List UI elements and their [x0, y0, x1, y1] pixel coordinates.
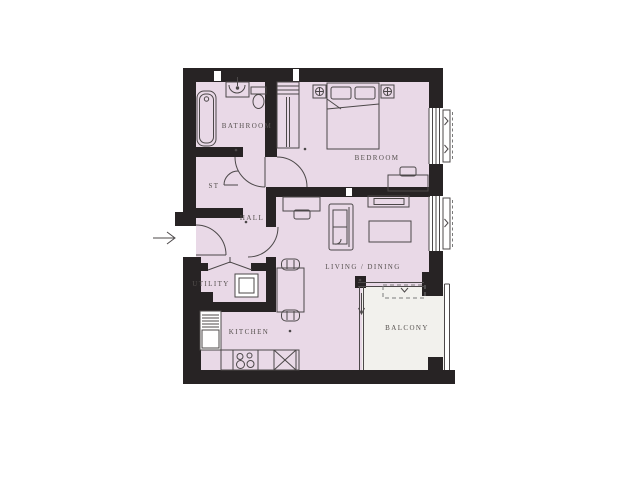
room-label-st: ST [209, 182, 220, 190]
living-window [429, 196, 453, 251]
room-label-kitchen: KITCHEN [229, 328, 270, 336]
entry-arrow-icon [153, 232, 175, 244]
bedroom-window [429, 108, 453, 164]
room-label-living-dining: LIVING / DINING [325, 263, 400, 271]
room-label-balcony: BALCONY [385, 324, 429, 332]
room-label-bedroom: BEDROOM [355, 154, 400, 162]
floor-plan-page: BATHROOM ST HALL BEDROOM UTILITY LIVING … [0, 0, 640, 480]
floor-plan-drawing: BATHROOM ST HALL BEDROOM UTILITY LIVING … [0, 0, 640, 480]
washing-machine-icon [235, 274, 258, 297]
room-label-hall: HALL [240, 214, 264, 222]
room-label-bathroom: BATHROOM [222, 122, 272, 130]
room-label-utility: UTILITY [192, 280, 229, 288]
utility-fixtures [235, 274, 258, 297]
fridge-freezer-icon [200, 311, 221, 350]
